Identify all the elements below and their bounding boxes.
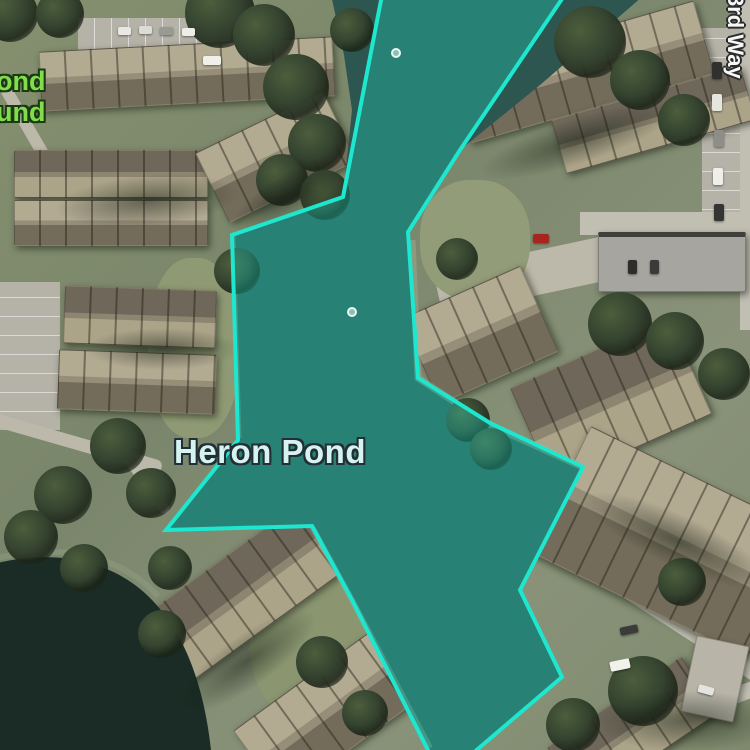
fountain-dot: [348, 308, 356, 316]
clipped-place-label-line2: und: [0, 97, 45, 128]
selection-overlay[interactable]: [0, 0, 750, 750]
clipped-place-label-line1: ond: [0, 66, 45, 97]
street-name-label: 3rd Way: [722, 0, 748, 79]
pond-name-label: Heron Pond: [174, 433, 366, 471]
map-canvas[interactable]: Heron Pond ondund 3rd Way: [0, 0, 750, 750]
fountain-dot: [392, 49, 400, 57]
selection-polygon[interactable]: [166, 0, 583, 750]
